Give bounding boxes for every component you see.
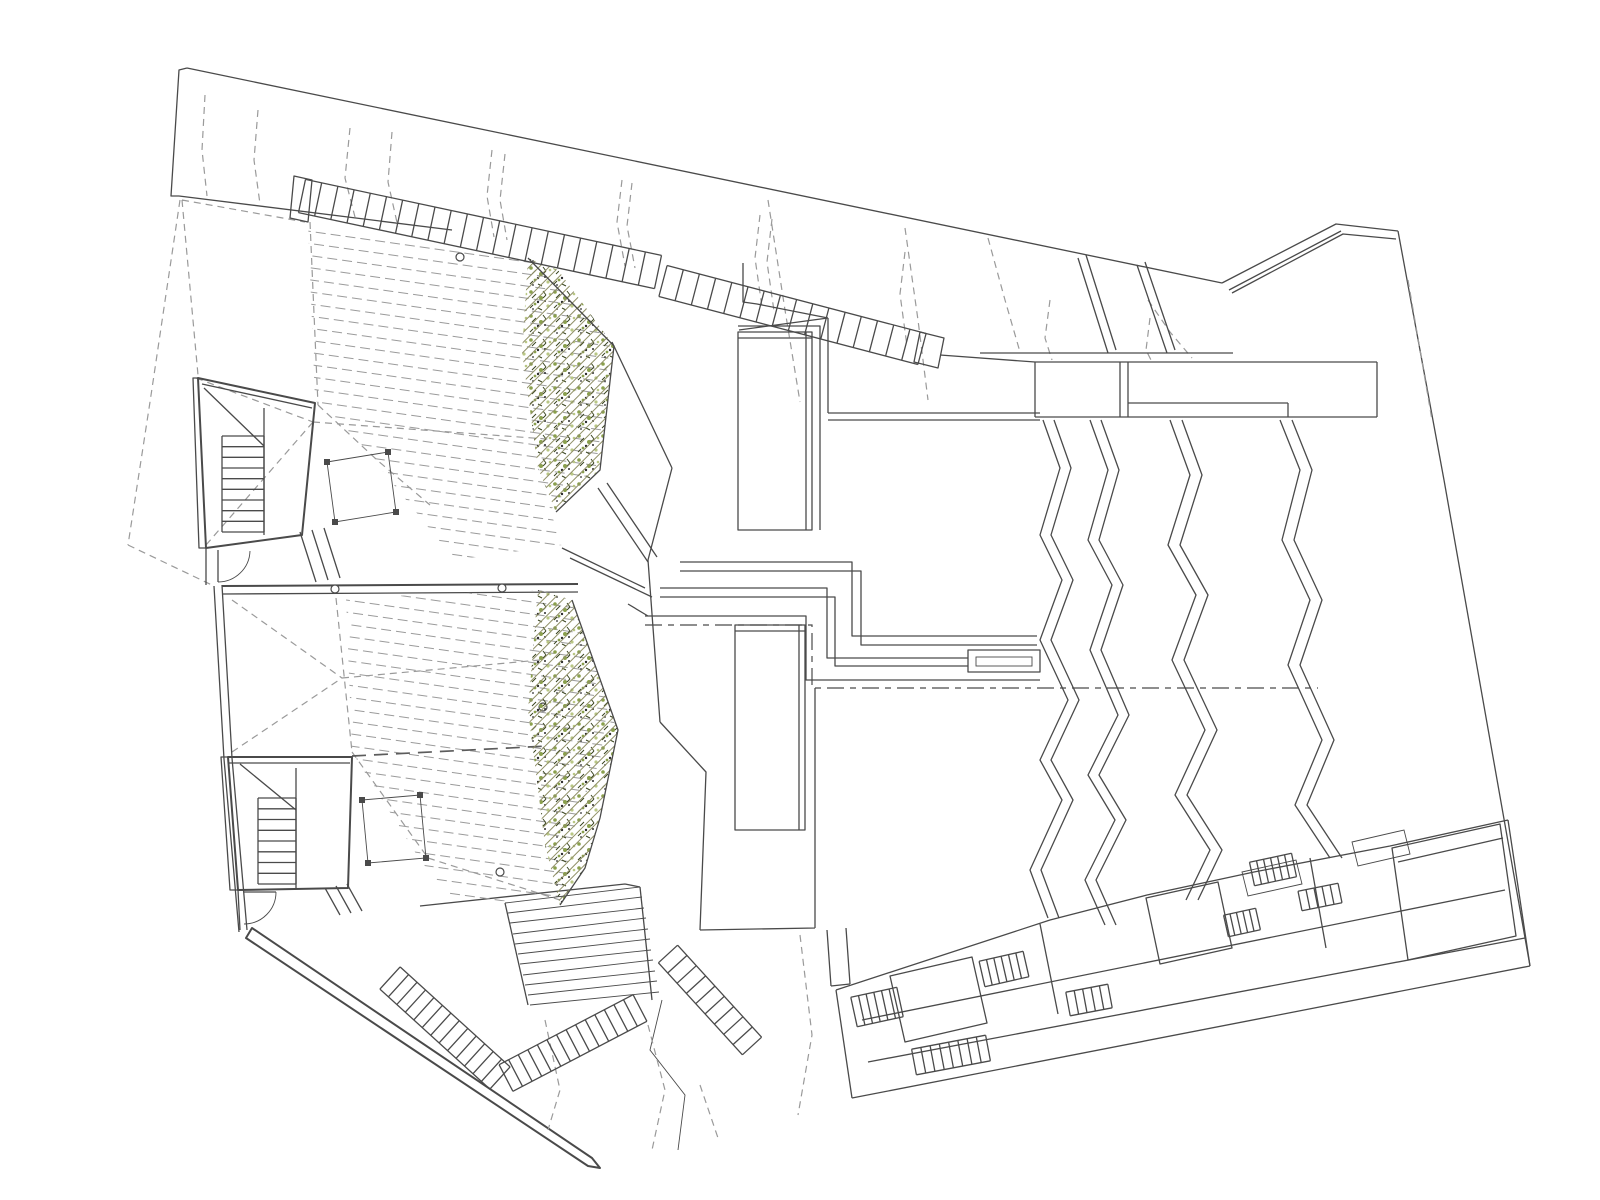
skylight-upper: [738, 332, 812, 530]
contour-lines-upper-right: [768, 200, 1432, 420]
central-walkway: [562, 483, 1318, 688]
skylight-lower: [735, 625, 805, 830]
site-plan-page: [0, 0, 1600, 1200]
site-plan-canvas: [0, 0, 1600, 1200]
door-swing: [244, 892, 276, 924]
patio-band: [836, 820, 1530, 1098]
door-swing: [218, 551, 250, 582]
patio-unit: [890, 957, 987, 1042]
roof-fold-lines: [1030, 420, 1342, 925]
site-boundary: [171, 68, 1530, 966]
railing-post: [456, 253, 464, 261]
amphitheater-steps: [505, 887, 659, 1005]
walkway-bench: [968, 650, 1040, 672]
